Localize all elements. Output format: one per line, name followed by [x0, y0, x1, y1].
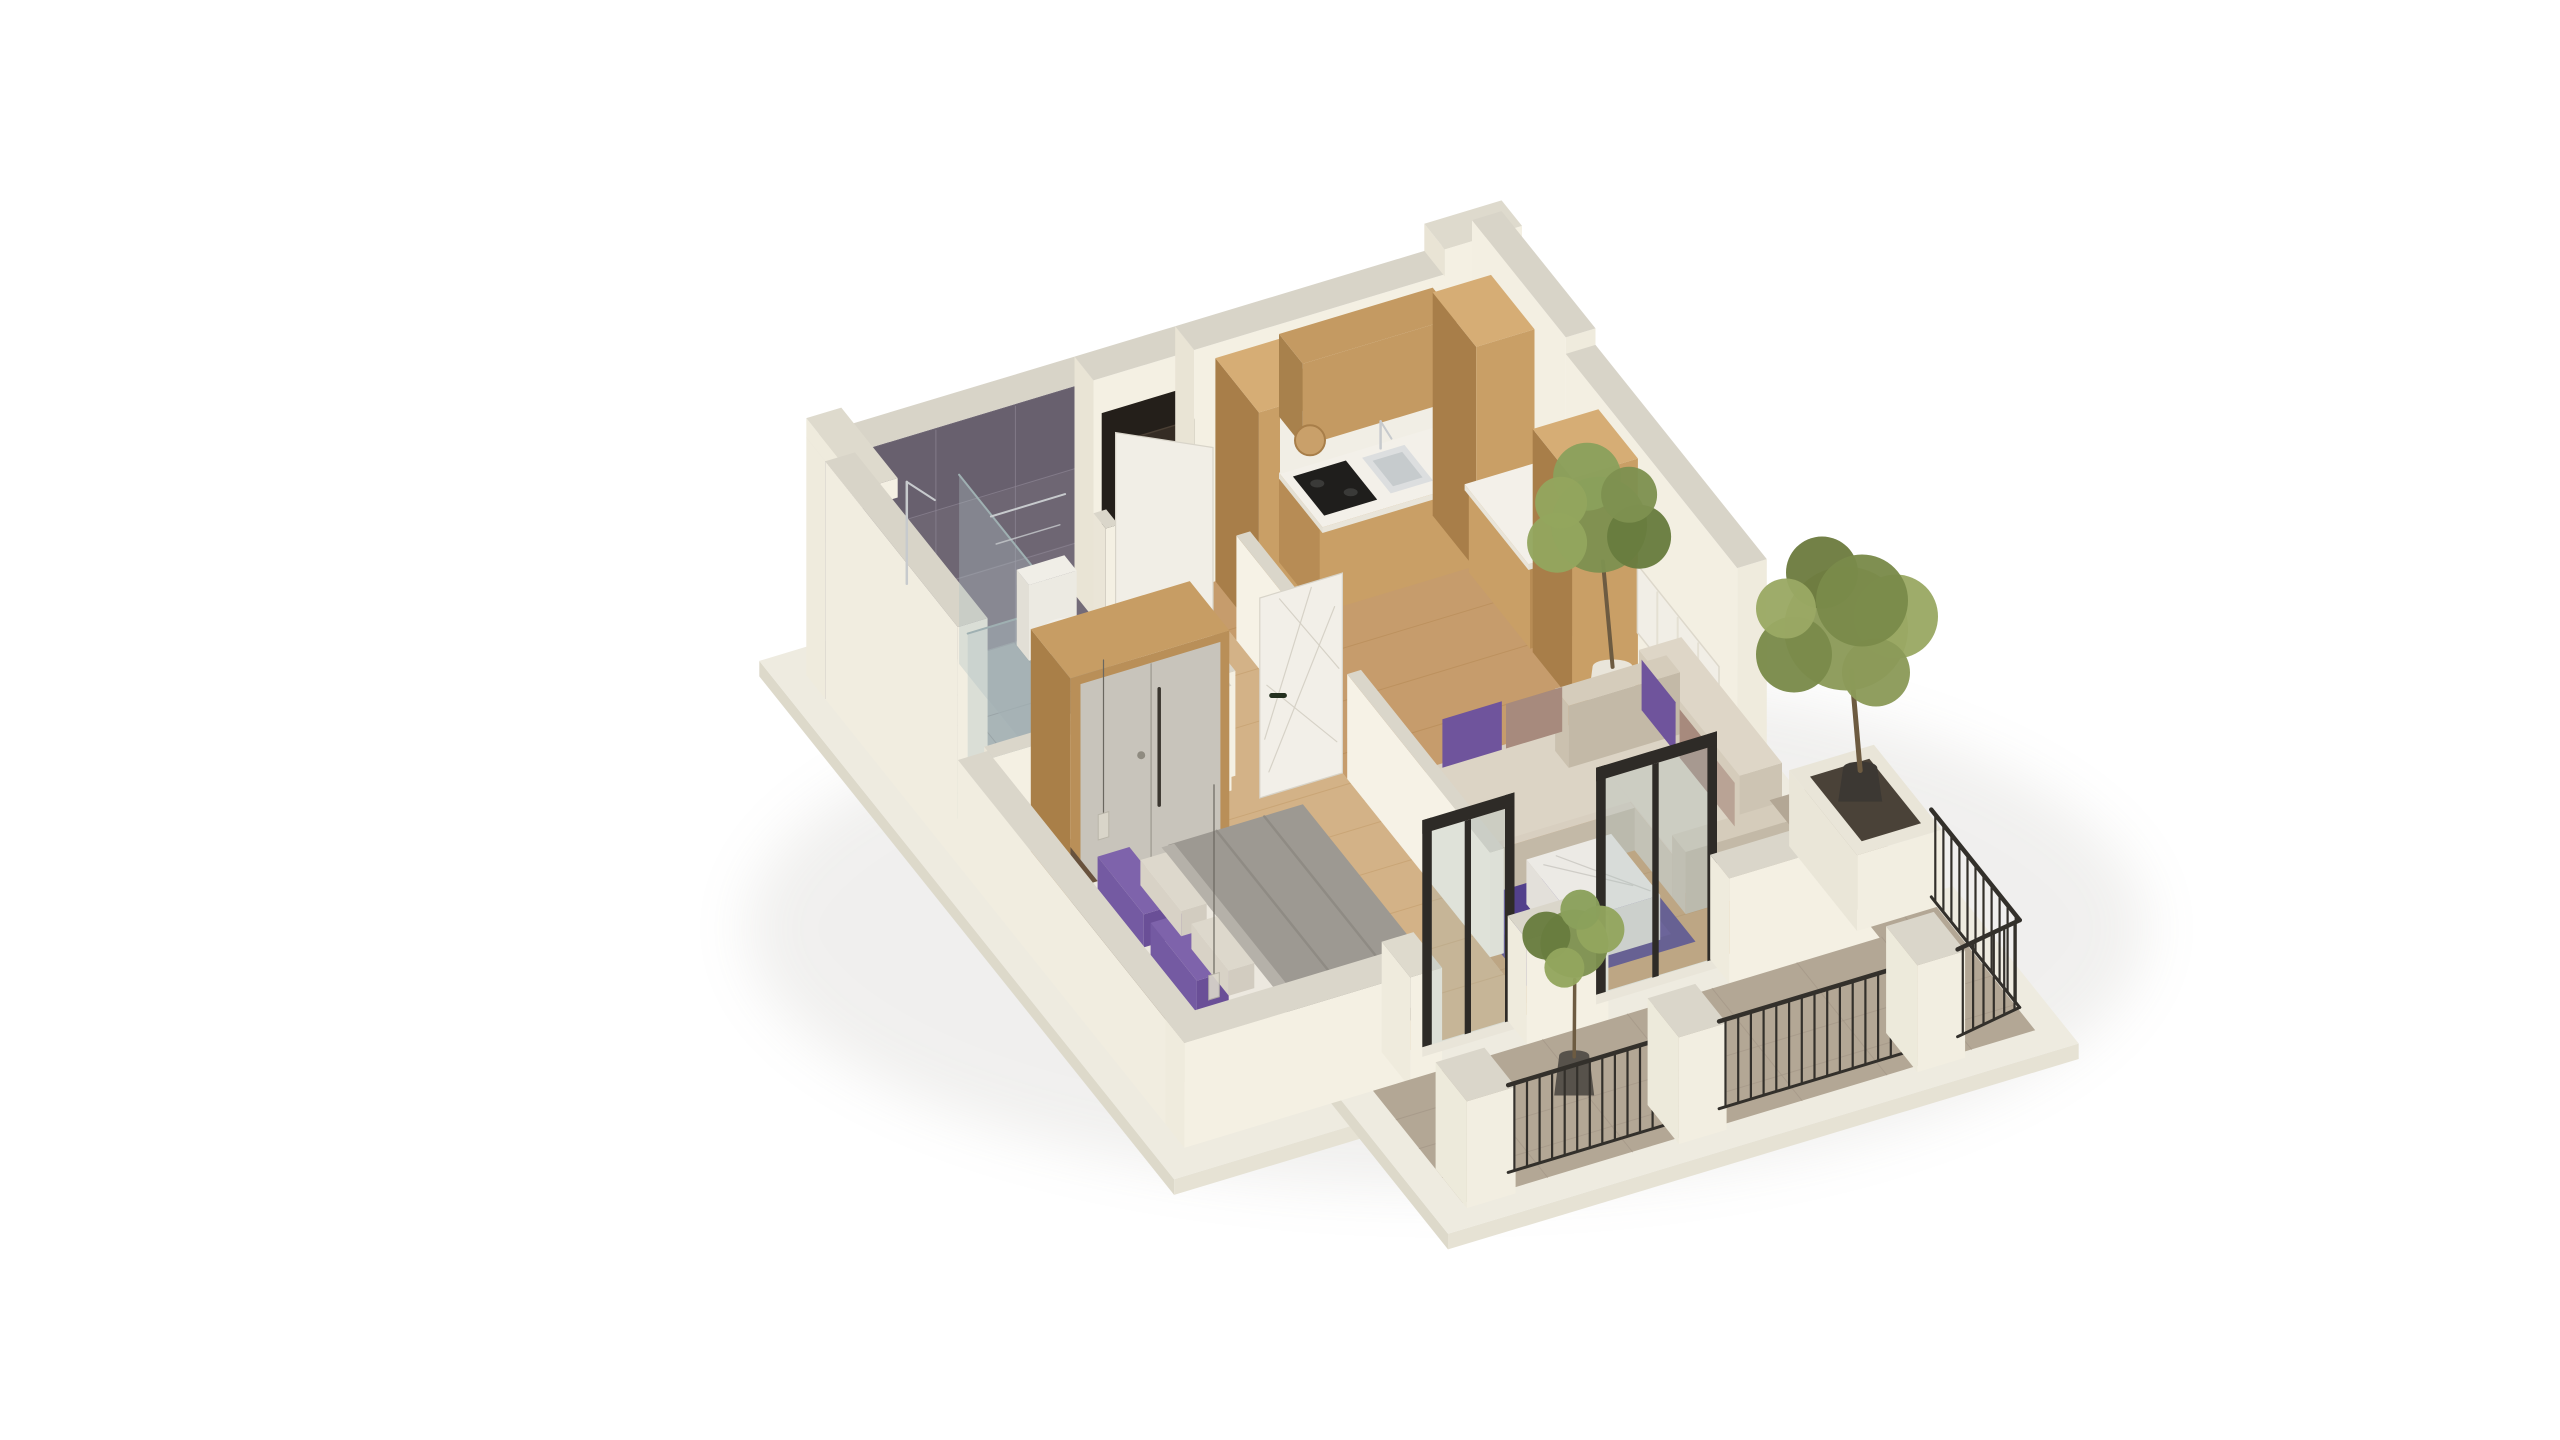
olive-tree-canopy-foliage-6 — [1816, 555, 1908, 647]
pendant-shade-1 — [1098, 812, 1109, 840]
balcony-pillar-mid-front — [1679, 1023, 1727, 1144]
floorplan-render-page — [0, 0, 2560, 1440]
back-wall-entry-side — [1075, 357, 1094, 618]
wardrobe-knob — [1137, 751, 1145, 759]
olive-tree-canopy-foliage-4 — [1842, 639, 1910, 707]
olive-tree-canopy-foliage-5 — [1756, 579, 1816, 639]
glass-unit-2-mullion — [1652, 763, 1658, 978]
ficus-canopy-foliage-4 — [1601, 467, 1657, 523]
glass-unit-1-mullion — [1465, 819, 1471, 1034]
glass-unit-1-frame-left — [1422, 817, 1432, 1047]
back-wall-bathroom-tiled-side — [806, 438, 825, 700]
balcony-pillar-sw-front — [1467, 1087, 1516, 1208]
balcony-plant-canopy-foliage-4 — [1544, 948, 1584, 988]
toilet-tank-side — [1017, 570, 1029, 661]
ficus-canopy-foliage-5 — [1535, 477, 1587, 529]
balcony-plant-canopy-foliage-3 — [1560, 890, 1600, 930]
balcony-pillar-se-front — [1917, 951, 1965, 1072]
pendant-shade-2 — [1209, 973, 1220, 1000]
apartment-3d-floorplan-render — [0, 0, 2560, 1440]
cooktop-burner-1 — [1310, 480, 1324, 488]
backsplash-round-board — [1295, 425, 1325, 455]
balcony-plant-trunk — [1574, 980, 1575, 1057]
cooktop-burner-2 — [1344, 488, 1358, 496]
